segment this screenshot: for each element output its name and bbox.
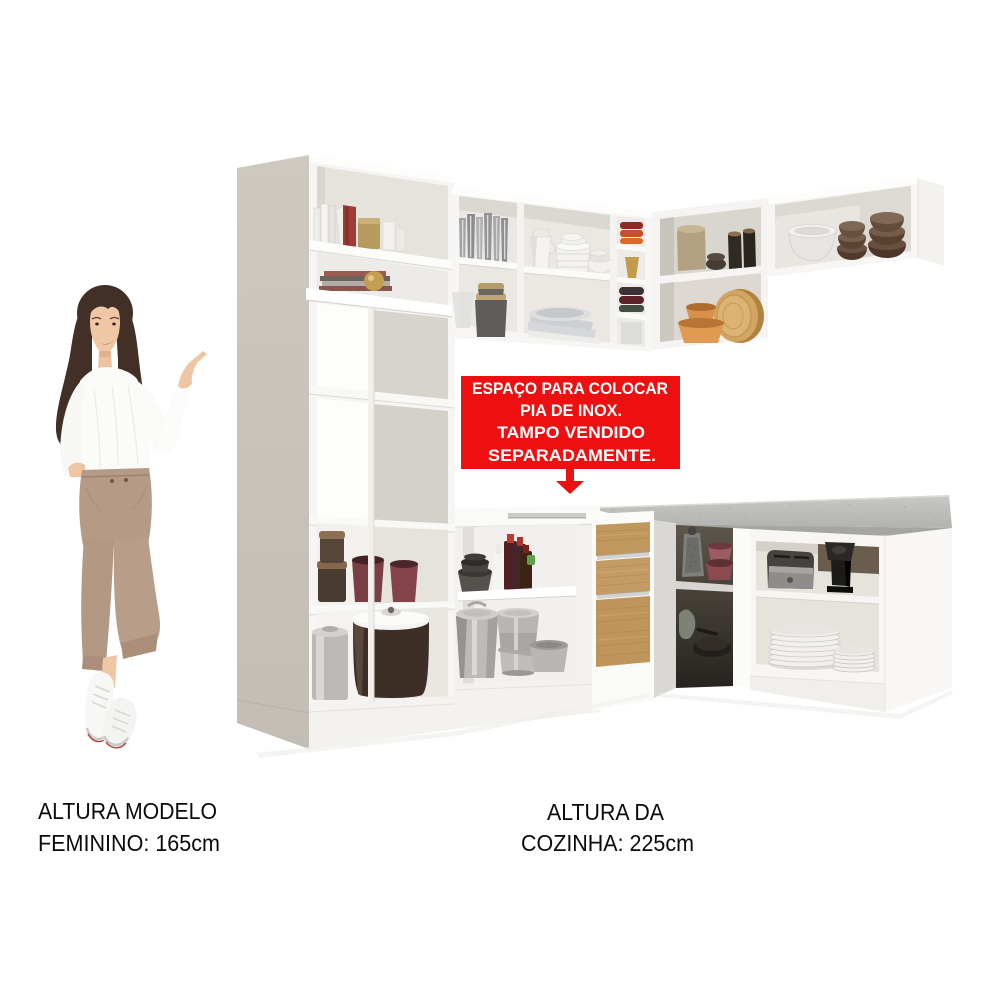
svg-text:PIA DE INOX.: PIA DE INOX. — [520, 402, 622, 420]
svg-text:ALTURA MODELO: ALTURA MODELO — [38, 798, 217, 824]
svg-text:ESPAÇO PARA COLOCAR: ESPAÇO PARA COLOCAR — [472, 380, 668, 398]
svg-text:ALTURA DA: ALTURA DA — [547, 799, 665, 825]
svg-text:FEMININO: 165cm: FEMININO: 165cm — [38, 830, 220, 856]
svg-text:TAMPO VENDIDO: TAMPO VENDIDO — [497, 424, 645, 442]
svg-text:SEPARADAMENTE.: SEPARADAMENTE. — [488, 447, 656, 465]
svg-text:COZINHA: 225cm: COZINHA: 225cm — [521, 830, 694, 856]
